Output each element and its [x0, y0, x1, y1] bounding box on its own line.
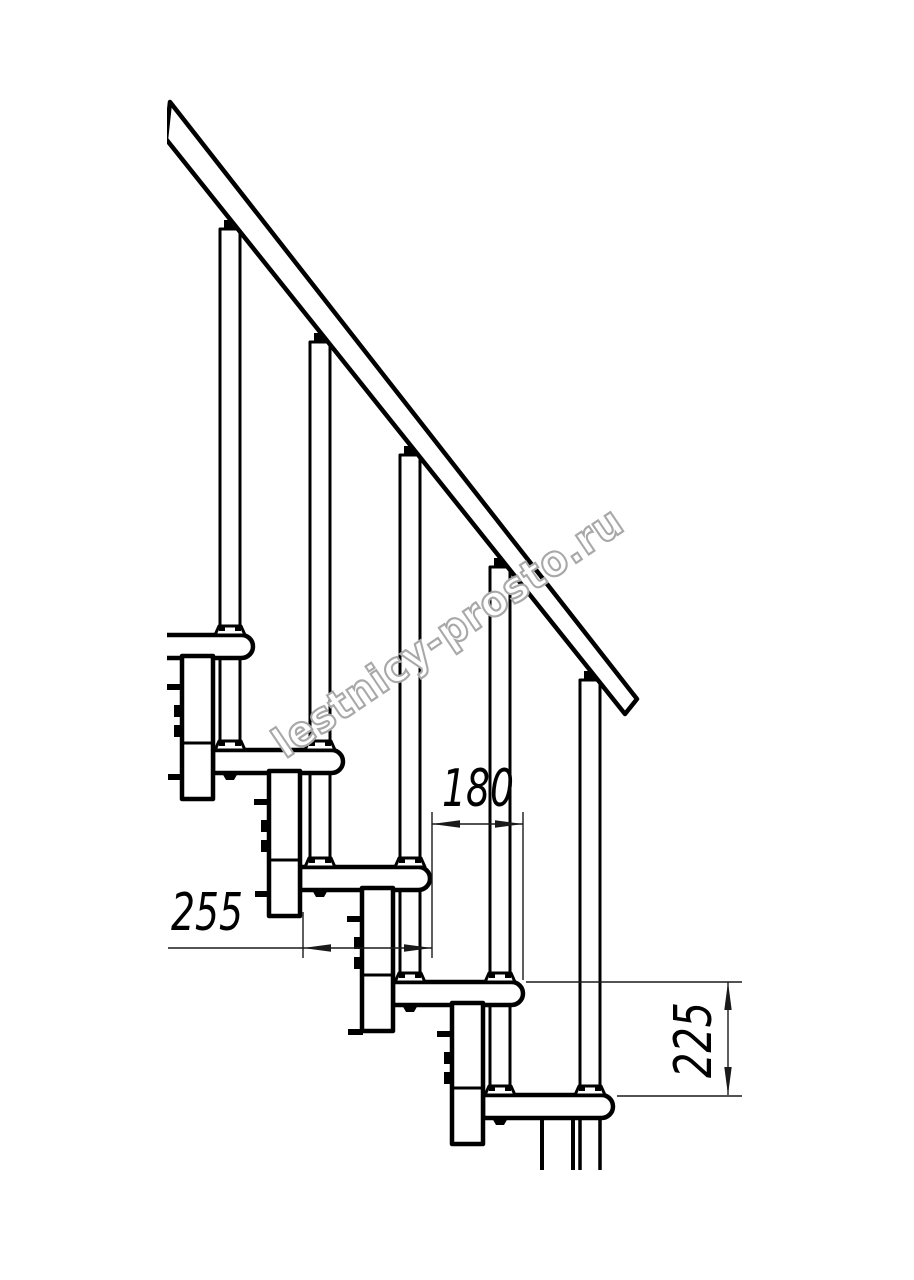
dimension-label-255: 255 — [171, 883, 243, 943]
arrow-left-icon — [303, 944, 331, 951]
staircase-drawing-page: 255 180 225 lestnicy-prosto.ru — [0, 0, 914, 1280]
arrow-down-icon — [724, 1067, 731, 1095]
baluster-5-tube — [580, 680, 600, 1086]
baluster-2-tube — [310, 342, 330, 741]
support-box-1 — [167, 656, 213, 799]
nut-under-tread-3 — [312, 890, 328, 897]
baluster-4-leg — [490, 1003, 510, 1086]
nut-under-tread-4 — [402, 1005, 418, 1012]
support-box-3 — [347, 888, 393, 1035]
tread-5 — [483, 1095, 613, 1118]
dimension-label-180: 180 — [442, 759, 514, 819]
nut-under-tread-2 — [222, 773, 238, 780]
baluster-1-leg — [220, 656, 240, 741]
baluster-1-tube — [220, 229, 240, 626]
baluster-2-leg — [310, 771, 330, 858]
dimension-riser-height: 225 — [526, 982, 742, 1096]
nut-under-tread-5 — [492, 1118, 508, 1125]
support-box-4 — [437, 1003, 483, 1144]
dimension-label-225: 225 — [664, 1002, 724, 1078]
support-box-2 — [254, 771, 300, 916]
arrow-up-icon — [724, 982, 731, 1010]
support-box-5 — [542, 1116, 573, 1170]
baluster-5-leg — [580, 1118, 600, 1170]
staircase-technical-drawing: 255 180 225 lestnicy-prosto.ru — [0, 0, 914, 1280]
stair-structure — [123, 102, 637, 1170]
baluster-3-leg — [400, 888, 420, 973]
arrow-left-icon — [432, 820, 460, 827]
